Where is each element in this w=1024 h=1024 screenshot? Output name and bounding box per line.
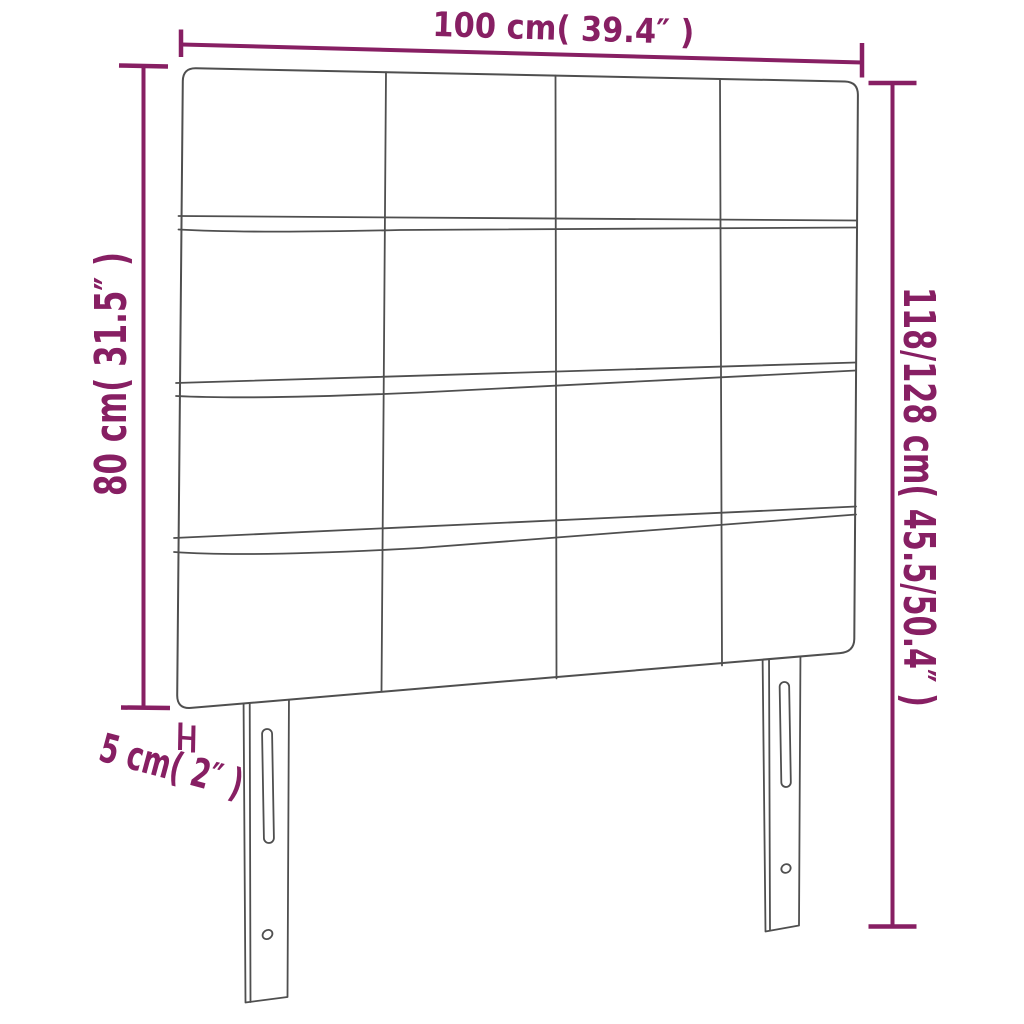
right-leg-edge-facet — [769, 649, 770, 931]
headboard-group — [174, 68, 858, 1002]
panel-seam-vertical — [555, 76, 556, 679]
left-leg-edge-facet — [250, 692, 251, 1002]
left-leg — [244, 691, 290, 1003]
thickness-crossbar — [181, 738, 194, 739]
leg-slot — [262, 729, 274, 843]
board-height-tick-bottom — [121, 708, 170, 709]
thickness-dimension-label: 5 cm( 2″ ) — [94, 725, 248, 807]
total-height-dimension-label: 118/128 cm( 45.5/50.4″ ) — [893, 287, 944, 707]
leg-slot — [780, 682, 791, 787]
right-leg — [763, 646, 801, 932]
board-height-tick-top — [119, 66, 168, 67]
width-dimension-label: 100 cm( 39.4″ ) — [432, 5, 695, 53]
headboard-dimension-diagram: 100 cm( 39.4″ ) 80 cm( 31.5″ ) 118/128 c… — [0, 0, 1024, 1024]
headboard-diagram-svg: 100 cm( 39.4″ ) 80 cm( 31.5″ ) 118/128 c… — [0, 0, 1024, 1024]
board-height-dimension-label: 80 cm( 31.5″ ) — [86, 252, 137, 496]
